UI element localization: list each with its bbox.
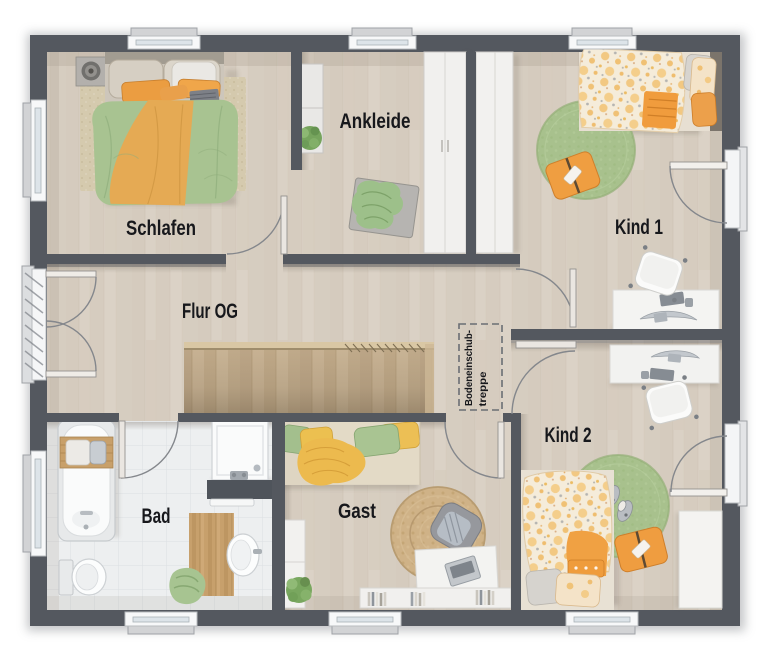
svg-text:treppe: treppe	[477, 371, 489, 406]
svg-text:Bodeneinschub-: Bodeneinschub-	[463, 330, 475, 406]
svg-text:Ankleide: Ankleide	[340, 110, 411, 133]
svg-text:Bad: Bad	[142, 505, 171, 528]
svg-text:Flur OG: Flur OG	[182, 300, 238, 323]
svg-text:Schlafen: Schlafen	[126, 217, 196, 240]
svg-text:Kind 1: Kind 1	[615, 216, 663, 239]
svg-text:Kind 2: Kind 2	[545, 424, 592, 447]
svg-text:Gast: Gast	[338, 500, 376, 523]
